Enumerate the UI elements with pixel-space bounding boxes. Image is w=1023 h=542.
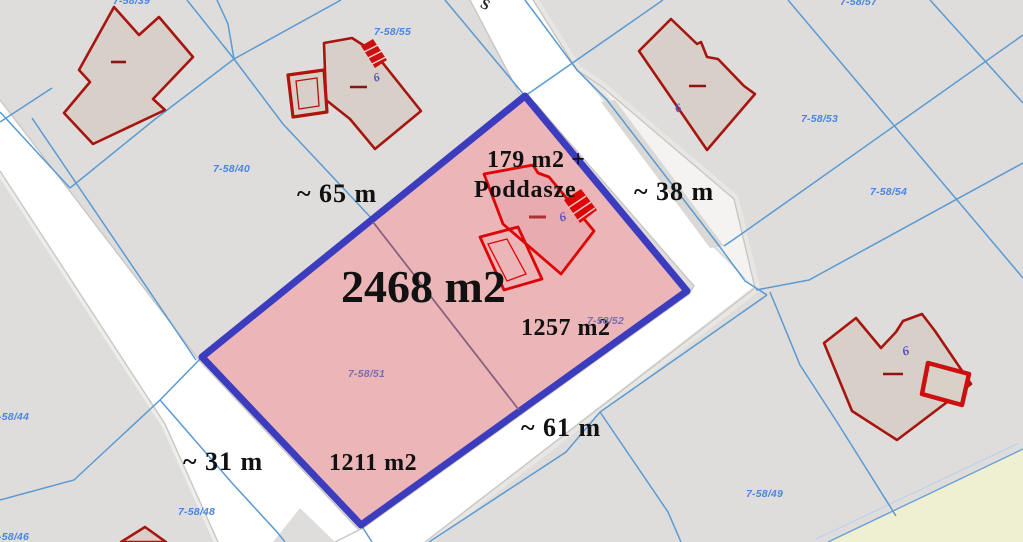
svg-text:7-58/49: 7-58/49 [746, 488, 783, 500]
svg-text:7-58/40: 7-58/40 [213, 163, 250, 175]
svg-text:7-58/46: 7-58/46 [0, 531, 29, 542]
svg-text:~ 65 m: ~ 65 m [297, 179, 377, 208]
svg-text:1211 m2: 1211 m2 [329, 450, 417, 476]
svg-text:2468 m2: 2468 m2 [341, 261, 506, 312]
svg-text:~ 61 m: ~ 61 m [521, 413, 601, 442]
svg-text:7-58/55: 7-58/55 [374, 26, 411, 38]
svg-text:~ 38 m: ~ 38 m [634, 177, 714, 206]
svg-text:7-58/48: 7-58/48 [178, 506, 215, 518]
svg-text:7-58/53: 7-58/53 [801, 113, 838, 125]
svg-text:7-58/57: 7-58/57 [840, 0, 878, 8]
svg-text:179 m2 +: 179 m2 + [487, 147, 585, 173]
svg-text:7-58/52: 7-58/52 [587, 315, 624, 327]
svg-text:7-58/44: 7-58/44 [0, 411, 29, 423]
svg-text:~ 31 m: ~ 31 m [183, 447, 263, 476]
svg-text:7-58/54: 7-58/54 [870, 186, 907, 198]
svg-text:7-58/39: 7-58/39 [113, 0, 150, 7]
svg-text:Poddasze: Poddasze [474, 177, 576, 203]
svg-text:7-58/51: 7-58/51 [348, 368, 385, 380]
